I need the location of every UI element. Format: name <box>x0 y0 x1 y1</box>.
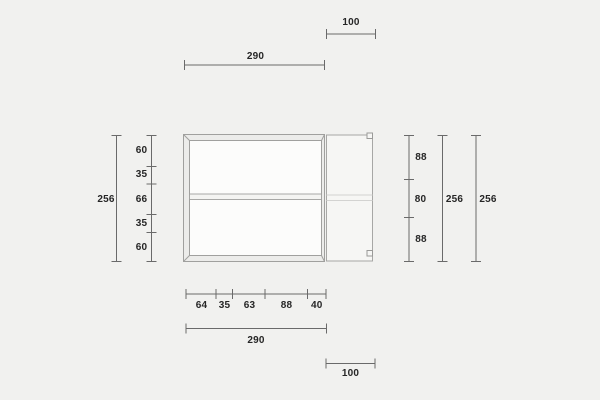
dim-label-bottom-body-width: 290 <box>247 336 264 346</box>
dim-label-right-overall: 256 <box>446 195 463 205</box>
dim-label-right-seg-3: 88 <box>415 235 427 245</box>
technical-drawing-canvas: 100 290 256 60 35 66 35 60 88 80 88 256 … <box>0 0 600 400</box>
dim-label-bottom-seg-5: 40 <box>311 301 323 311</box>
dim-label-left-seg-3: 66 <box>136 195 148 205</box>
drawing-svg <box>0 0 600 400</box>
dim-label-left-seg-4: 35 <box>136 219 148 229</box>
dim-label-right-overall-outer: 256 <box>479 195 496 205</box>
dim-label-bottom-door-width: 100 <box>342 369 359 379</box>
dim-right-chain <box>404 136 414 262</box>
dim-label-top-body-width: 290 <box>247 52 264 62</box>
dim-label-bottom-seg-2: 35 <box>219 301 231 311</box>
hinge-square-bottom <box>367 251 373 257</box>
dim-bottom-chain <box>186 289 326 299</box>
cabinet-body <box>184 135 325 262</box>
dim-top-door-width <box>327 29 376 39</box>
dim-left-chain <box>147 136 157 262</box>
dim-label-left-overall: 256 <box>97 195 114 205</box>
dim-label-top-door-width: 100 <box>342 18 359 28</box>
door-rect <box>327 135 373 261</box>
door-panel <box>327 133 373 261</box>
middle-shelf <box>190 194 322 200</box>
hinge-square-top <box>367 133 373 139</box>
dim-bottom-body-width <box>186 324 327 334</box>
dim-label-bottom-seg-3: 63 <box>244 301 256 311</box>
dim-label-bottom-seg-1: 64 <box>196 301 208 311</box>
dim-label-left-seg-5: 60 <box>136 243 148 253</box>
dim-label-right-seg-2: 80 <box>415 195 427 205</box>
dim-label-bottom-seg-4: 88 <box>281 301 293 311</box>
dim-label-right-seg-1: 88 <box>415 153 427 163</box>
dim-label-left-seg-2: 35 <box>136 170 148 180</box>
dim-label-left-seg-1: 60 <box>136 146 148 156</box>
